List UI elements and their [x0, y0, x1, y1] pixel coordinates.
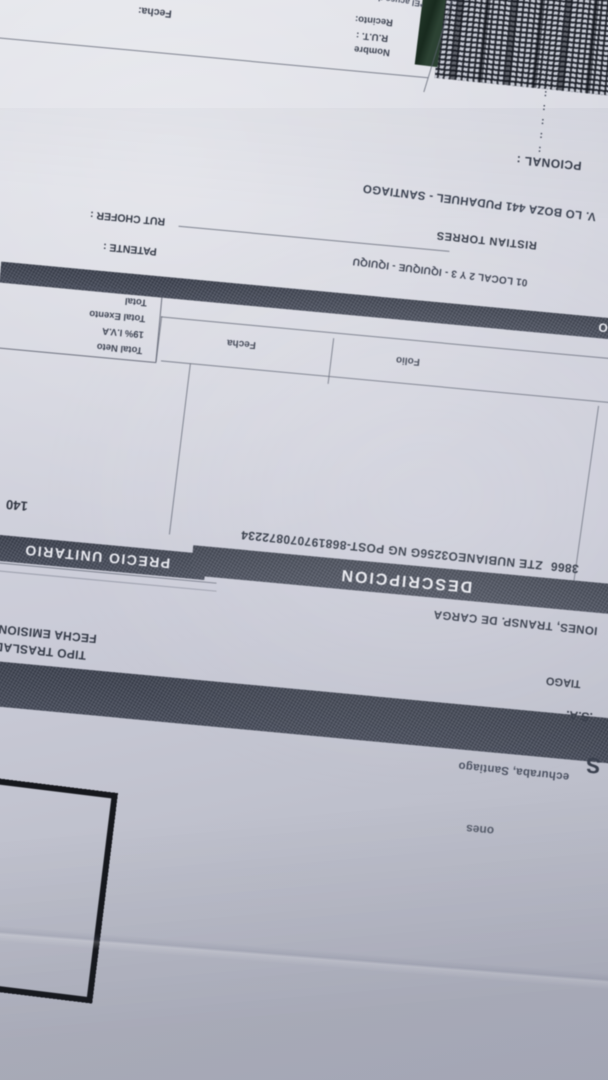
- acuse-nombre-label: Nombre: [354, 43, 391, 58]
- item-code: 3866: [550, 559, 580, 576]
- photographed-dispatch-document: *El acuse de recibo qu Fecha: Recinto: R…: [0, 0, 608, 1080]
- patente-label: PATENTE :: [103, 241, 158, 258]
- unit-price-value: 140: [5, 497, 28, 514]
- paper-shadow-band: [0, 108, 608, 218]
- logo-letter: S: [585, 751, 602, 778]
- total-label: Total: [124, 295, 147, 308]
- total-label: Total Neto: [96, 341, 143, 356]
- company-suffix: .S.A.: [565, 708, 593, 724]
- folio-label: Folio: [396, 354, 421, 367]
- table-edge-line: [572, 406, 599, 586]
- city-partial: TIAGO: [545, 674, 581, 689]
- company-header-band: [0, 661, 608, 763]
- driver-name: RISTIAN TORRES: [436, 229, 538, 251]
- word-partial: ones: [465, 822, 494, 839]
- descripcion-header: DESCRIPCION: [339, 565, 473, 595]
- acuse-fecha-label: Fecha:: [137, 4, 172, 19]
- reference-box-bottom-border: [161, 360, 608, 403]
- fecha-label: Fecha: [227, 337, 257, 351]
- acuse-rut-label: R.U.T. :: [356, 29, 389, 43]
- total-label: Total Exento: [89, 308, 146, 324]
- giro-line: IONES, TRANSP. DE CARGA: [433, 608, 598, 637]
- total-label: 19% I.V.A: [102, 325, 145, 340]
- margin-colon: :: [543, 88, 547, 99]
- signature-line: [179, 225, 450, 251]
- sucursal-line: 01 LOCAL 2 Y 3 - IQUIQUE - IQUIQU: [352, 255, 528, 287]
- rut-box-outline: [0, 762, 118, 1003]
- table-column-divider: [169, 364, 191, 535]
- band-mark: O: [596, 320, 608, 335]
- pdf417-barcode: [435, 0, 608, 96]
- acuse-note: *El acuse de recibo qu: [333, 0, 424, 9]
- acuse-recinto-label: Recinto:: [355, 13, 394, 28]
- issuer-address-partial: echuraba, Santiago: [458, 759, 570, 782]
